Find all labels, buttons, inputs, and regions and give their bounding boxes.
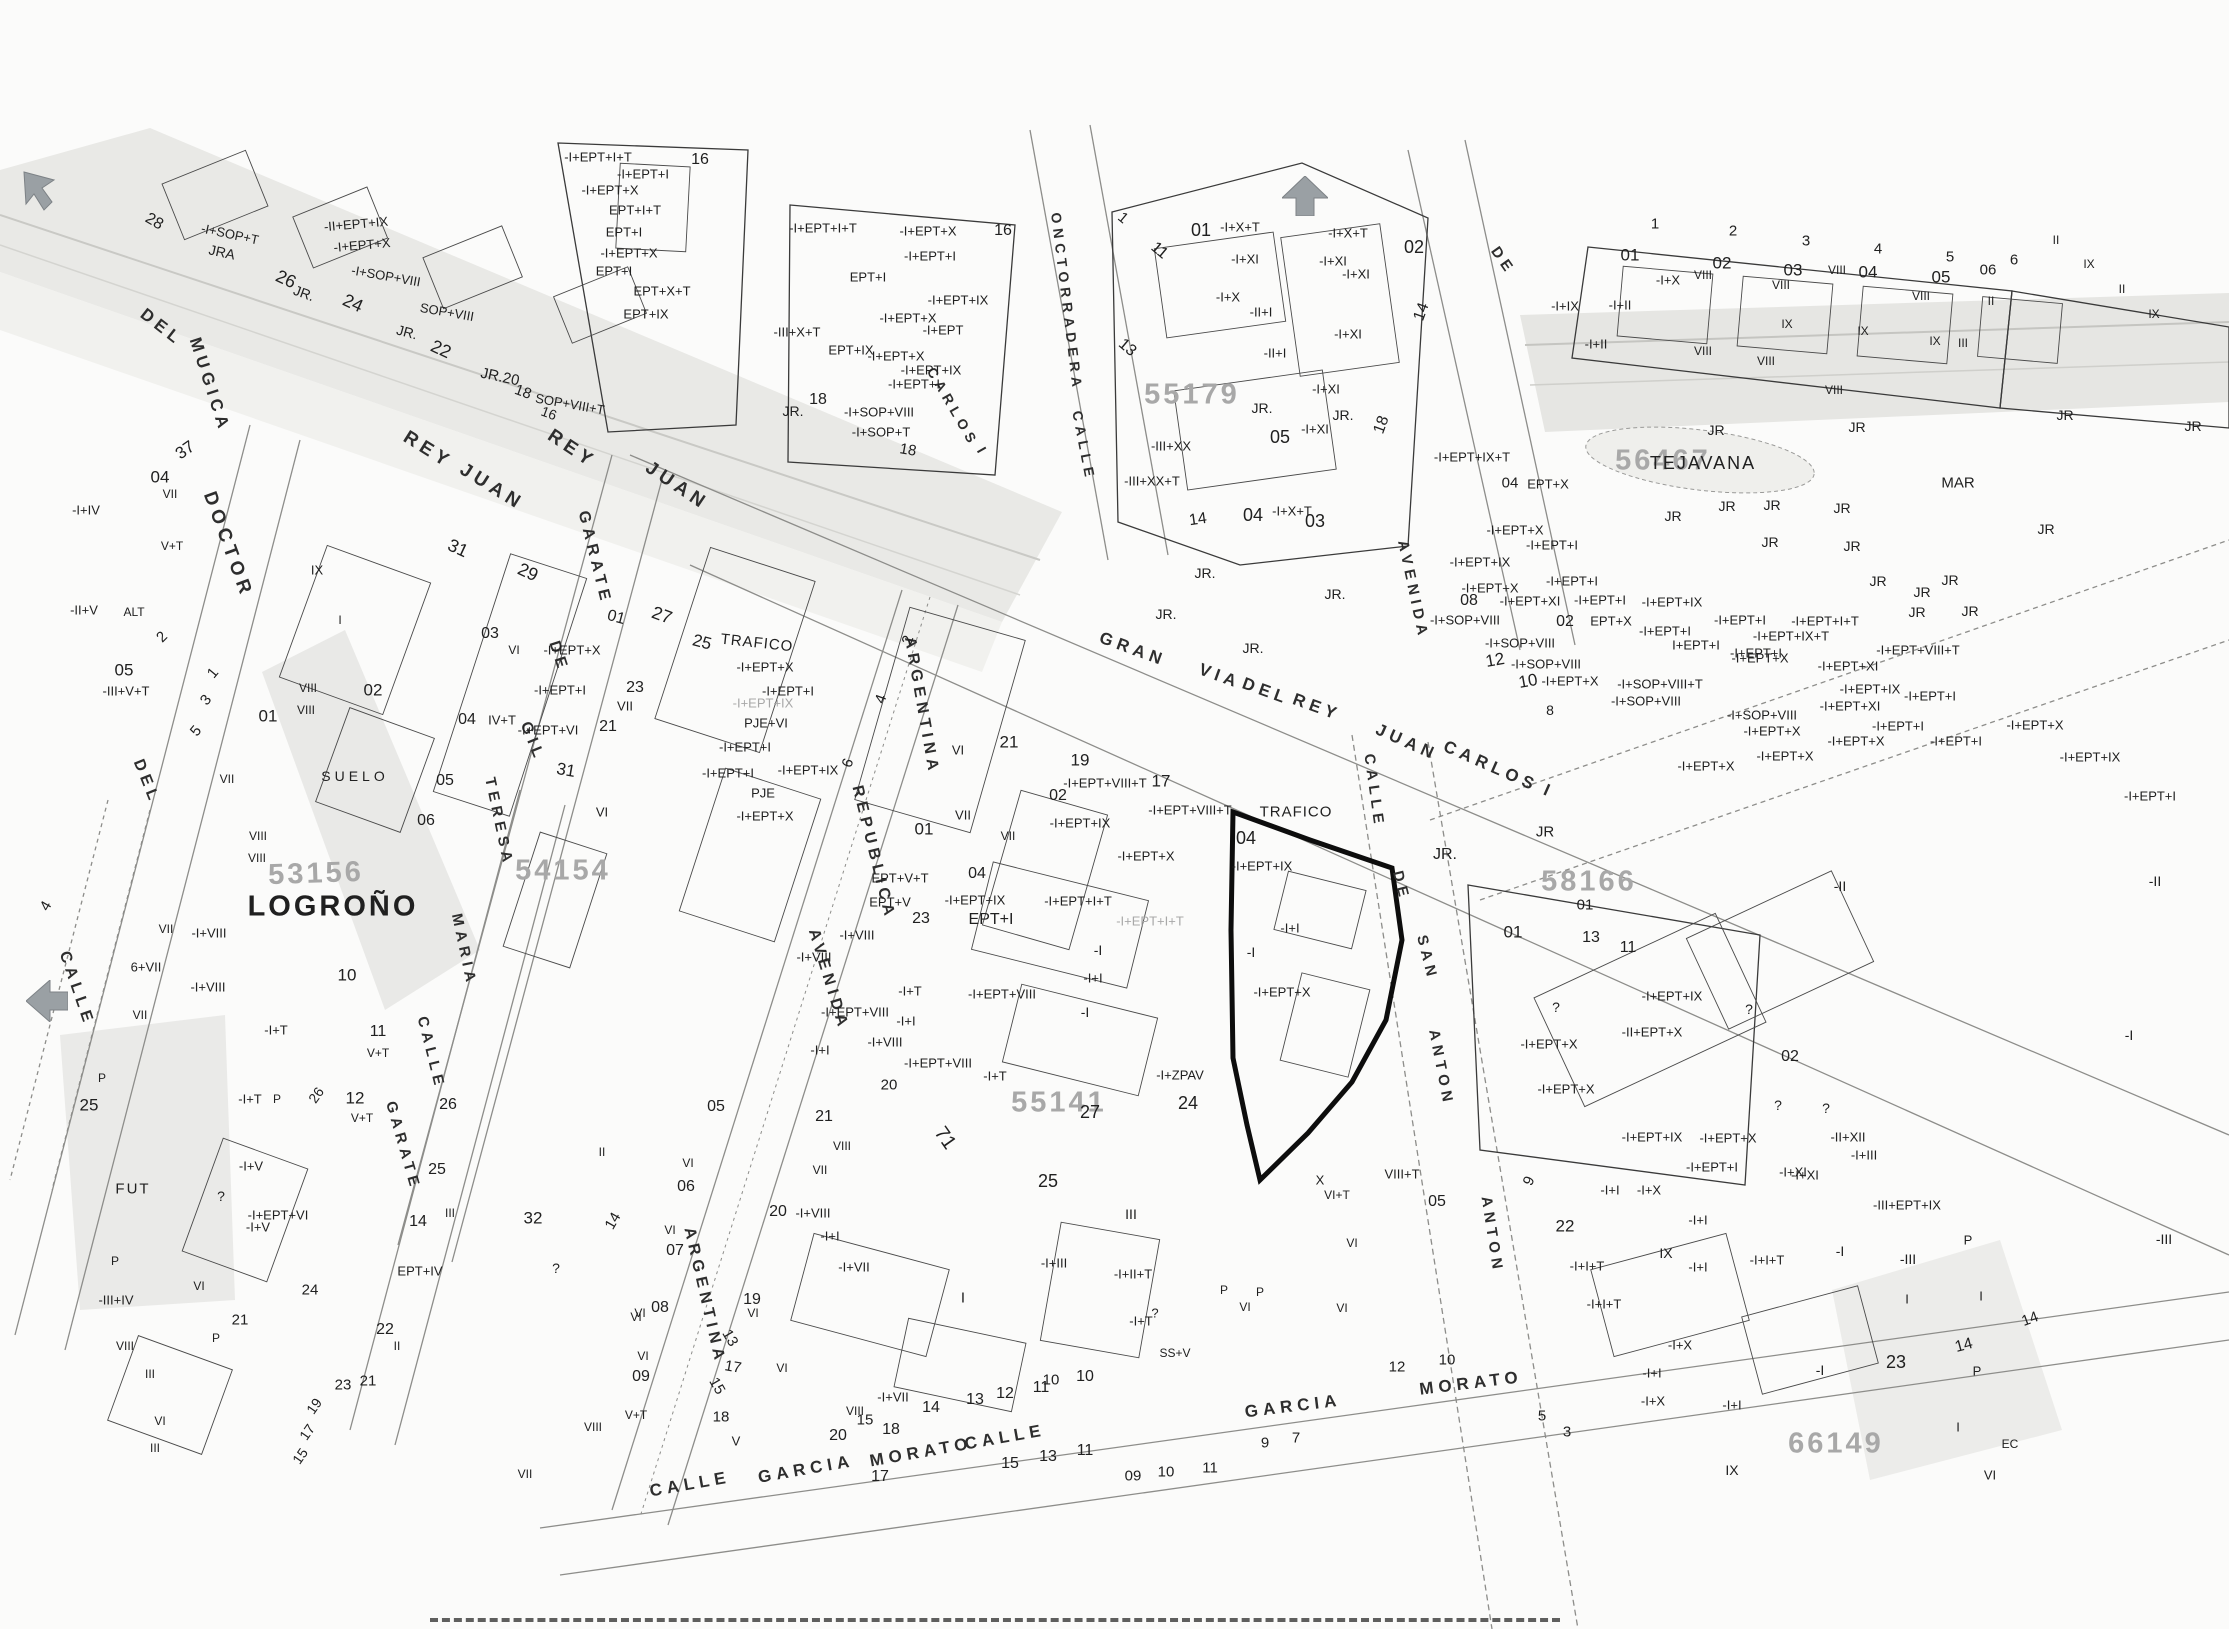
map-label: -I+EPT+X (1756, 750, 1813, 763)
map-label: 01 (1504, 924, 1523, 941)
map-label: I (338, 614, 341, 626)
street-name-label: CALLE (1361, 753, 1386, 829)
map-label: -I+X+T (1328, 227, 1368, 240)
map-label: TRAFICO (1260, 805, 1333, 820)
street-name-label: CALLE (1070, 409, 1097, 482)
street-name-label: CARLOS (1441, 738, 1541, 795)
map-label: P (212, 1332, 220, 1344)
map-label: EPT+V (869, 896, 911, 909)
street-name-label: VIA (1197, 661, 1244, 692)
map-label: PJE+VI (744, 717, 788, 730)
map-label: -I+EPT+X (1699, 1132, 1756, 1145)
map-label: -III+EPT+IX (1873, 1199, 1941, 1212)
map-label: 20 (881, 1078, 898, 1093)
map-label: 18 (713, 1410, 730, 1425)
street-name-label: ANTON (1478, 1195, 1505, 1274)
map-label: -I+I (1280, 922, 1299, 935)
map-label: 02 (1781, 1049, 1799, 1065)
map-label: -I+X (1641, 1395, 1665, 1408)
map-label: -III+XX (1151, 440, 1191, 453)
map-label: 25 (428, 1162, 446, 1178)
map-label: VIII (297, 704, 315, 716)
map-label: -I+I (1688, 1214, 1707, 1227)
map-label: -I (1247, 945, 1256, 959)
parcel-id-label: 54154 (515, 857, 611, 886)
map-label: VIII (1694, 269, 1712, 281)
map-label: VIII (249, 830, 267, 842)
map-label: JR (1718, 499, 1735, 513)
map-label: -I+EPT+X (1541, 675, 1598, 688)
map-label: -I+EPT+X (1677, 760, 1734, 773)
map-label: 29 (515, 560, 541, 585)
map-label: -I+I+T (1570, 1260, 1605, 1273)
street-name-label: CALLE (415, 1015, 448, 1091)
map-label: EC (2002, 1438, 2019, 1450)
map-label: 18 (882, 1422, 900, 1438)
map-label: -I (2125, 1028, 2134, 1042)
map-label: 4 (37, 899, 54, 914)
map-label: III (150, 1442, 160, 1454)
map-label: 17 (1152, 773, 1171, 790)
map-label: VI+T (1324, 1189, 1350, 1201)
map-label: 06 (677, 1179, 695, 1195)
map-label: -I+EPT+I (904, 250, 956, 263)
map-label: II (2053, 234, 2060, 246)
map-label: JR (1536, 825, 1554, 840)
map-label: EPT+X (1590, 615, 1632, 628)
map-label: -I+I (1722, 1399, 1741, 1412)
map-label: V+T (625, 1409, 647, 1421)
map-label: -II (1834, 879, 1846, 893)
map-label: -I+III (1041, 1257, 1067, 1270)
map-label: ? (217, 1189, 225, 1203)
map-label: -I+EPT+X (543, 644, 600, 657)
map-label: 18 (513, 382, 534, 402)
map-label: VIII (1694, 345, 1712, 357)
map-label: VI (1336, 1302, 1347, 1314)
map-label: 17 (871, 1469, 889, 1485)
map-label: -I+SOP+VIII (1727, 709, 1797, 722)
map-label: -I+I+T (1587, 1298, 1622, 1311)
map-label: IX (1857, 325, 1868, 337)
map-label: I (1956, 1421, 1960, 1434)
map-label: -I+EPT+X (2006, 719, 2063, 732)
map-label: IX (1781, 318, 1792, 330)
map-label: 14 (922, 1400, 940, 1416)
street-name-label: CALLE (648, 1469, 731, 1500)
map-label: III (145, 1368, 155, 1380)
map-label: -I+SOP+VIII (1611, 695, 1681, 708)
map-label: -I+IX (1551, 300, 1579, 313)
map-label: -I+I (810, 1044, 829, 1057)
map-label: -III+V+T (103, 685, 150, 698)
map-label: -I+SOP+T (852, 426, 911, 439)
map-label: -I+SOP+VIII (1430, 614, 1500, 627)
parcel-id-label: 55179 (1144, 381, 1240, 410)
map-label: 26 (306, 1085, 326, 1106)
map-label: JR (2184, 419, 2201, 433)
map-label: 16 (994, 223, 1012, 239)
map-label: -I+X (1216, 291, 1240, 304)
map-label: -I+EPT+VIII+T (1876, 644, 1959, 657)
map-label: 01 (1577, 898, 1594, 913)
map-label: -I+XI (1301, 423, 1329, 436)
map-label: 07 (666, 1243, 684, 1259)
map-label: -I+EPT+VIII+T (1063, 777, 1146, 790)
map-label: EPT+IV (397, 1265, 442, 1278)
map-label: -I+EPT+I+T (1791, 615, 1859, 628)
map-label: 14 (1953, 1336, 1974, 1356)
map-label: V (732, 1435, 741, 1448)
map-label: -I+EPT+X (736, 661, 793, 674)
map-label: -I+EPT+X (1743, 725, 1800, 738)
map-label: 5 (1538, 1409, 1546, 1424)
map-label: 12 (1484, 650, 1506, 670)
map-label: -I+V (239, 1160, 263, 1173)
map-label: 24 (340, 291, 366, 316)
map-label: -I+EPT+I (1714, 614, 1766, 627)
street-name-label: ARGENTINA (680, 1226, 727, 1366)
map-label: VIII (833, 1140, 851, 1152)
map-label: -I+EPT+I+T (564, 151, 632, 164)
map-label: VI (637, 1350, 648, 1362)
map-label: -I+EPT+VIII (904, 1057, 972, 1070)
map-label: 23 (912, 911, 930, 927)
map-label: 10 (1517, 671, 1539, 691)
map-label: -I+I (896, 1015, 915, 1028)
map-label: -I+EPT+X (581, 184, 638, 197)
map-label: 14 (602, 1210, 623, 1232)
map-label: 18 (1371, 414, 1392, 436)
map-label: 05 (436, 773, 454, 789)
map-label: II (599, 1146, 606, 1158)
map-label: 14 (2020, 1309, 2041, 1329)
map-label: -I+EPT+I (702, 767, 754, 780)
map-label: 15 (706, 1375, 727, 1397)
map-label: -I (1081, 1005, 1090, 1019)
map-label: 20 (829, 1428, 847, 1444)
map-label: 31 (555, 760, 577, 780)
map-label: 5 (1946, 250, 1954, 265)
map-label: JRA (208, 242, 237, 261)
map-label: -I+V (246, 1221, 270, 1234)
map-label: -I+EPT+IX (778, 764, 839, 777)
map-label: VII (617, 700, 633, 713)
map-label: PJE (751, 787, 775, 800)
map-label: 31 (445, 536, 471, 561)
map-label: -II+EPT+X (1622, 1026, 1683, 1039)
map-label: -I+T (238, 1093, 261, 1106)
map-label: -II+I (1264, 347, 1287, 360)
map-label: -I+EPT+VIII (821, 1006, 889, 1019)
map-label: -I (1094, 943, 1103, 957)
map-label: -I+ZPAV (1156, 1069, 1204, 1082)
map-label: 22 (428, 337, 454, 362)
map-label: -II+XII (1830, 1131, 1865, 1144)
map-label: 1 (1651, 217, 1659, 232)
street-name-label: DEL (1240, 675, 1292, 708)
map-label: -I+VIII (796, 951, 831, 964)
map-label: 10 (1158, 1465, 1175, 1480)
map-label: SOP+VIII (419, 301, 475, 323)
map-label: -I+X (1637, 1184, 1661, 1197)
street-name-label: DE (1488, 244, 1518, 278)
map-label: -I+EPT+I (1546, 575, 1598, 588)
map-label: 24 (302, 1283, 319, 1298)
map-label: EPT+I (606, 226, 643, 239)
map-label: -I+EPT+VI (518, 724, 579, 737)
map-label: EPT+X+T (633, 285, 690, 298)
map-label: ALT (123, 606, 144, 618)
map-label: 25 (1038, 1172, 1058, 1190)
labels-layer: DELMUGICADOCTORDELREYJUANREYJUANGARATEDE… (0, 0, 2229, 1629)
map-label: -I+XI (1312, 383, 1340, 396)
map-label: VII (163, 488, 178, 500)
map-label: VI (193, 1280, 204, 1292)
map-label: -I+EPT+I (534, 684, 586, 697)
map-label: I (1905, 1293, 1909, 1306)
street-name-label: JUAN (457, 460, 528, 514)
map-label: VI (952, 744, 964, 757)
map-label: -I+EPT+I (1904, 690, 1956, 703)
map-label: EPT+I (596, 265, 633, 278)
street-name-label: REY (400, 428, 456, 473)
street-name-label: CALLE (56, 949, 97, 1028)
map-label: -I (1836, 1244, 1845, 1258)
parcel-id-label: 58166 (1541, 868, 1637, 897)
map-label: 18 (898, 441, 917, 459)
map-label: -II (2149, 874, 2161, 888)
map-label: 22 (1556, 1218, 1575, 1235)
map-label: 13 (1582, 930, 1600, 946)
map-label: -I+EPT+IX+T (1753, 630, 1829, 643)
map-label: -I+X (1656, 274, 1680, 287)
map-label: 15 (857, 1413, 874, 1428)
map-label: VIII (116, 1340, 134, 1352)
map-label: 4 (873, 693, 890, 706)
map-label: 16 (539, 404, 558, 422)
map-label: -I+EPT+XI (1818, 660, 1879, 673)
map-label: VII (518, 1468, 533, 1480)
street-name-label: DEL (130, 757, 162, 807)
map-label: 04 (1243, 506, 1263, 524)
map-label: JR (1848, 420, 1865, 434)
map-label: 3 (198, 692, 215, 708)
map-label: 13 (1039, 1449, 1057, 1465)
map-label: 14 (1411, 301, 1432, 323)
map-label: -I+EPT+IX (1450, 556, 1511, 569)
map-label: JR (1761, 535, 1778, 549)
map-label: IV+T (488, 714, 516, 727)
map-label: -I+SOP+T (200, 222, 260, 247)
map-label: -I+IV (72, 504, 100, 517)
map-label: -I+EPT+X (736, 810, 793, 823)
map-label: I (961, 1291, 965, 1306)
map-label: -I+VIII (867, 1036, 902, 1049)
map-label: -I+I (820, 1230, 839, 1243)
map-label: IX (2148, 308, 2159, 320)
map-label: 21 (1000, 734, 1019, 751)
map-label: P (1256, 1286, 1264, 1298)
map-label: VIII (1828, 264, 1846, 276)
map-label: VII (813, 1164, 828, 1176)
street-name-label: MORATO (868, 1435, 973, 1470)
map-label: -II+V (70, 604, 98, 617)
map-label: -I+EPT+XI (1820, 700, 1881, 713)
map-label: 11 (1033, 1380, 1050, 1396)
map-label: 22 (376, 1322, 394, 1338)
map-label: IX (311, 564, 323, 577)
map-label: -III+XX+T (1124, 475, 1180, 488)
map-label: 08 (651, 1300, 669, 1316)
map-label: 04 (458, 712, 476, 728)
map-label: 14 (409, 1214, 427, 1230)
map-label: VIII+T (1384, 1168, 1419, 1181)
map-label: -I+SOP+VIII (1511, 658, 1581, 671)
map-label: JR (1763, 498, 1780, 512)
map-label: 2 (154, 629, 171, 646)
street-name-label: JUAN (642, 458, 712, 514)
street-name-label: MORATO (1418, 1368, 1523, 1398)
map-label: 71 (930, 1123, 959, 1153)
map-label: VI (596, 806, 608, 819)
map-label: -I+VIII (795, 1207, 830, 1220)
map-label: -I+X (1668, 1339, 1692, 1352)
map-label: VIII (248, 852, 266, 864)
map-label: ? (552, 1261, 560, 1275)
map-label: V+T (351, 1112, 373, 1124)
street-name-label: TERESA (482, 776, 516, 868)
map-label: JR. (1252, 401, 1273, 415)
map-label: -I+EPT+X (1827, 735, 1884, 748)
map-label: P (1964, 1234, 1973, 1247)
map-label: -I+EPT+X (867, 350, 924, 363)
map-label: -I+I (1642, 1367, 1661, 1380)
map-label: -I+VII (877, 1391, 908, 1404)
map-label: 6 (840, 757, 857, 770)
street-name-label: I (975, 445, 992, 460)
map-label: JR. (395, 323, 419, 342)
map-label: I+EPT+I (1672, 639, 1720, 652)
map-label: VIII (1825, 384, 1843, 396)
map-label: 19 (304, 1396, 324, 1417)
map-label: JR. (1195, 566, 1216, 580)
map-label: -I+X+T (1220, 221, 1260, 234)
map-label: 17 (723, 1358, 742, 1376)
map-label: 21 (815, 1109, 833, 1125)
map-label: JR. (1243, 641, 1264, 655)
map-label: -I+EPT+X (1731, 652, 1788, 665)
map-label: -I+SOP+VIII+T (1617, 678, 1703, 691)
map-label: VII (955, 809, 971, 822)
map-label: -I+EPT+IX (1840, 683, 1901, 696)
map-label: VI (630, 1311, 641, 1323)
map-label: 04 (151, 469, 170, 486)
map-label: 21 (232, 1313, 249, 1328)
map-label: 01 (259, 708, 278, 725)
map-label: -I+EPT+IX (945, 894, 1006, 907)
map-label: -I+EPT+I (1526, 539, 1578, 552)
map-label: IX (2083, 258, 2094, 270)
map-label: 11 (1147, 240, 1170, 263)
map-label: P (273, 1093, 281, 1105)
map-label: -I+EPT+X (899, 225, 956, 238)
map-label: -I+EPT+I+T (789, 222, 857, 235)
map-label: -I+I (1688, 1261, 1707, 1274)
map-label: 14 (1188, 511, 1208, 529)
street-name-label: MARIA (449, 912, 479, 988)
map-label: MAR (1941, 476, 1974, 491)
map-label: 13 (1115, 336, 1139, 360)
map-label: 21 (599, 719, 617, 735)
map-label: -I+EPT+VIII+T (1148, 804, 1231, 817)
street-name-label: ARGENTINA (901, 636, 941, 777)
map-label: 02 (364, 682, 383, 699)
street-name-label: GARATE (575, 509, 614, 606)
map-label: VI (682, 1157, 693, 1169)
map-label: -I+VII (838, 1261, 869, 1274)
map-label: -I+T (1129, 1315, 1152, 1328)
map-label: -I+T (264, 1024, 287, 1037)
map-label: 11 (370, 1024, 387, 1040)
map-label: -I+EPT+IX (2060, 751, 2121, 764)
map-label: JR (1833, 501, 1850, 515)
map-label: -III+IV (98, 1294, 133, 1307)
parcel-id-label: 66149 (1788, 1430, 1884, 1459)
map-label: -I+EPT+IX (928, 294, 989, 307)
map-label: 06 (417, 813, 435, 829)
map-label: JR (1707, 423, 1724, 437)
map-label: -I+EPT+X (333, 236, 391, 254)
map-label: 04 (1859, 264, 1878, 281)
map-label: VIII (1772, 279, 1790, 291)
map-label: 16 (691, 152, 709, 168)
map-label: -I+EPT+IX (1050, 817, 1111, 830)
map-label: VI (1346, 1237, 1357, 1249)
map-label: VIII (299, 682, 317, 694)
map-label: EPT+V+T (871, 872, 928, 885)
map-label: EPT+I (969, 912, 1014, 928)
map-label: -I+II (1585, 338, 1608, 351)
map-label: JR (2056, 408, 2073, 422)
map-label: -I+XI (1334, 328, 1362, 341)
map-label: TRAFICO (720, 632, 794, 655)
map-label: -I+II (1609, 299, 1632, 312)
map-label: 9 (1520, 1174, 1537, 1188)
map-label: 27 (650, 603, 675, 627)
map-label: 10 (1076, 1369, 1094, 1385)
map-label: -I+VIII (839, 929, 874, 942)
map-label: -I+EPT+I (1639, 625, 1691, 638)
map-label: P (111, 1255, 119, 1267)
street-name-label: GARCIA (757, 1452, 856, 1486)
map-label: 12 (346, 1090, 365, 1107)
street-name-label: SAN (1414, 934, 1440, 983)
map-label: -I+SOP+VIII (350, 264, 421, 289)
map-label: -I+EPT+IX+T (1434, 451, 1510, 464)
map-label: -I+III (1851, 1149, 1877, 1162)
map-label: -I+EPT+I (2124, 790, 2176, 803)
map-label: -I+EPT+X (1253, 986, 1310, 999)
map-label: 25 (80, 1097, 99, 1114)
map-label: -I+SOP+VIII (1485, 637, 1555, 650)
street-name-label: MUGICA (187, 335, 234, 434)
map-label: JR (1664, 509, 1681, 523)
map-label: ? (1822, 1101, 1830, 1115)
map-label: IX (1725, 1463, 1738, 1477)
map-label: JR (1843, 539, 1860, 553)
cadastral-map: DELMUGICADOCTORDELREYJUANREYJUANGARATEDE… (0, 0, 2229, 1629)
